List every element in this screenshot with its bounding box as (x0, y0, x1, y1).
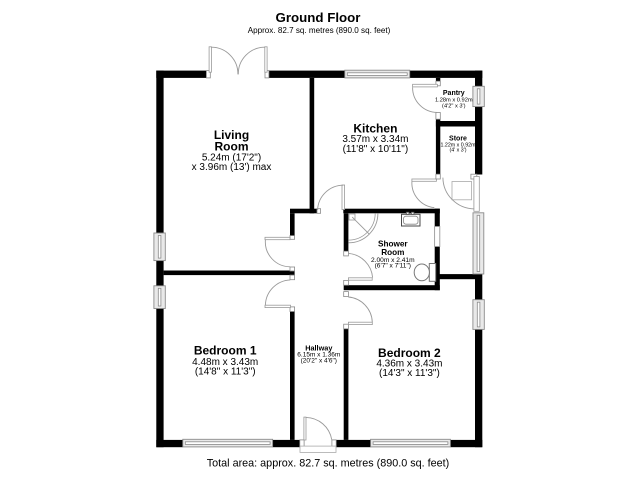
svg-text:(20'2" x 4'6"): (20'2" x 4'6") (301, 358, 337, 365)
svg-text:Approx. 82.7 sq. metres (890.0: Approx. 82.7 sq. metres (890.0 sq. feet) (248, 26, 391, 35)
svg-text:Bedroom 1: Bedroom 1 (194, 343, 257, 357)
svg-text:(14'3" x 11'3"): (14'3" x 11'3") (379, 368, 440, 379)
svg-text:(4' x 3'): (4' x 3') (449, 148, 466, 154)
svg-text:Pantry: Pantry (443, 90, 465, 97)
svg-text:(11'8" x 10'11"): (11'8" x 10'11") (343, 144, 409, 155)
svg-text:x 3.96m (13') max: x 3.96m (13') max (192, 162, 272, 173)
svg-text:(14'8" x 11'3"): (14'8" x 11'3") (195, 366, 256, 377)
svg-text:Room: Room (215, 139, 249, 153)
svg-text:(4'2" x 3'): (4'2" x 3') (442, 104, 466, 110)
svg-text:Total area: approx. 82.7 sq. m: Total area: approx. 82.7 sq. metres (890… (207, 458, 449, 470)
svg-text:Ground Floor: Ground Floor (276, 10, 361, 25)
svg-text:Room: Room (381, 248, 404, 257)
svg-text:(6'7" x 7'11"): (6'7" x 7'11") (375, 263, 411, 270)
